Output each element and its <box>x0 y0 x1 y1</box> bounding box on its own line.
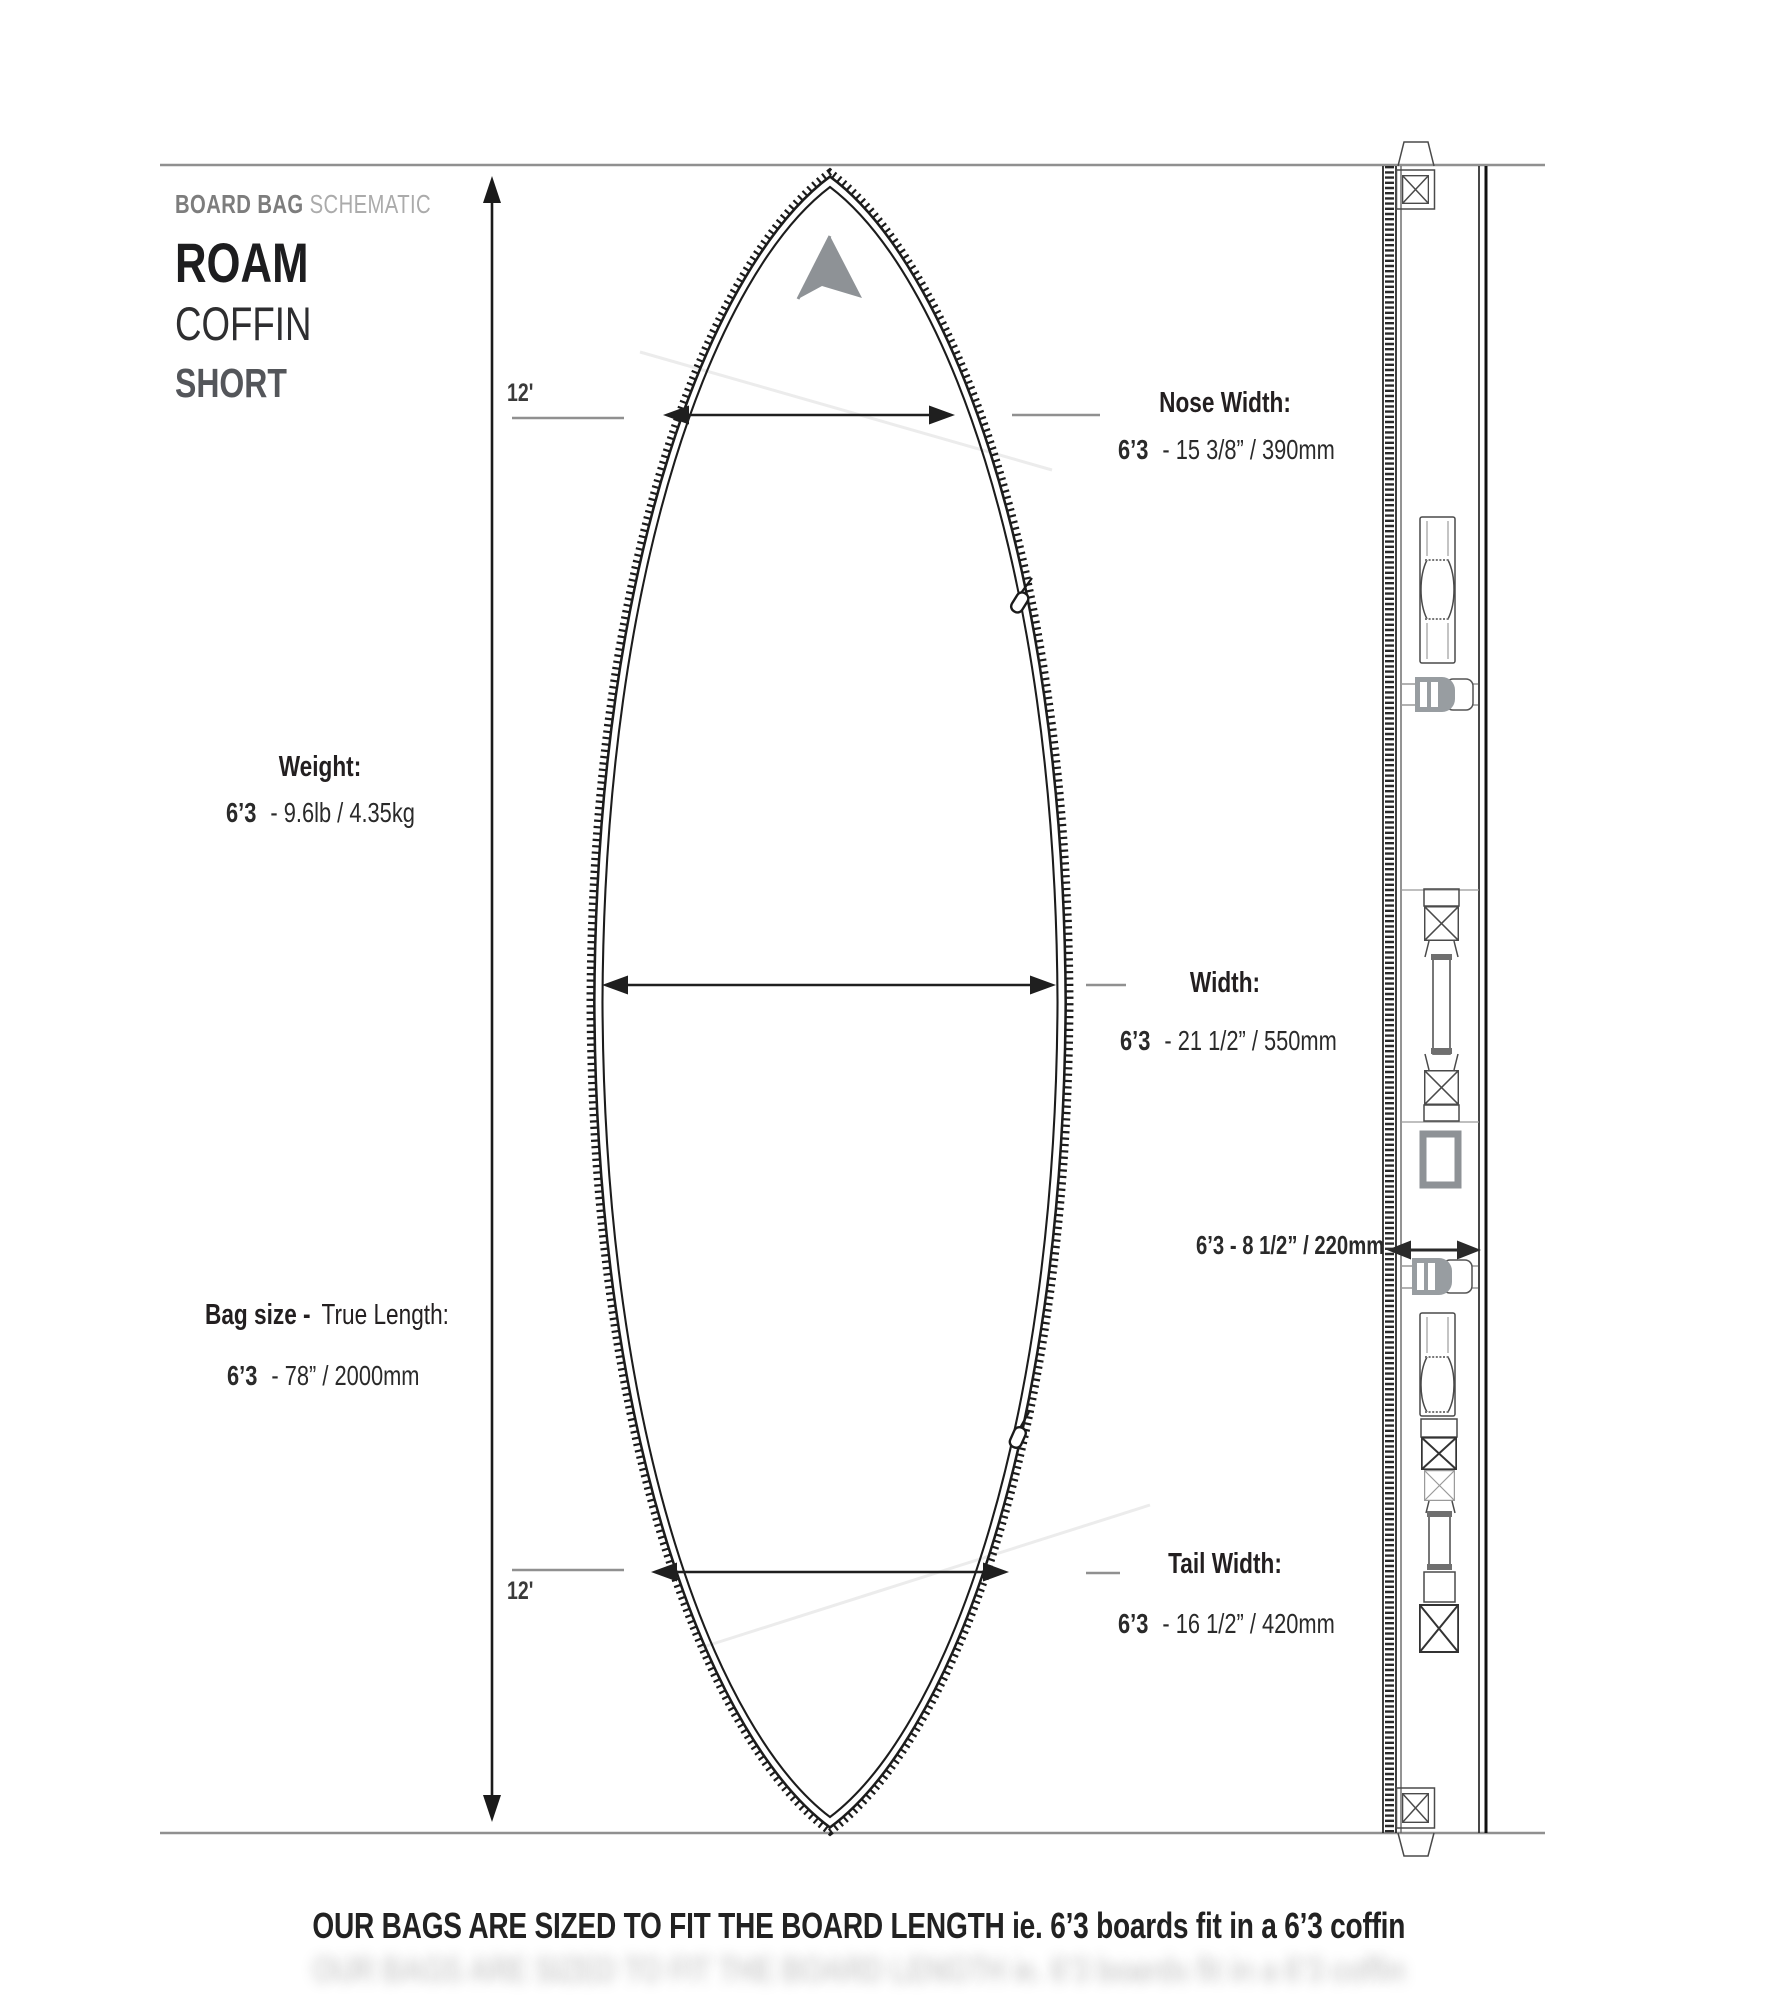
bag-front-view <box>590 172 1070 1832</box>
side-carry-handle-lower <box>1420 1313 1455 1416</box>
weight-value: 6’3- 9.6lb / 4.35kg <box>226 799 468 827</box>
category-primary: BOARD BAG <box>175 189 304 219</box>
nose-width-arrow <box>663 406 955 425</box>
product-variant: SHORT <box>175 363 319 404</box>
tail-width-label: Tail Width: <box>1131 1550 1318 1579</box>
bag-side-view <box>1383 142 1486 1856</box>
category-secondary: SCHEMATIC <box>310 189 431 219</box>
side-right-edge <box>1479 166 1486 1833</box>
bag-outline <box>594 177 1065 1828</box>
side-strap-buckle-upper <box>1401 677 1478 712</box>
depth-value: 6’3 - 8 1/2” / 220mm <box>1196 1232 1437 1258</box>
side-tail-strap <box>1420 1419 1458 1652</box>
side-zipper-rail <box>1383 166 1401 1833</box>
roam-logo-icon <box>798 236 862 299</box>
zipper-teeth-outline <box>590 172 1070 1832</box>
nose-width-label: Nose Width: <box>1131 389 1318 418</box>
sheen-lines <box>640 352 1150 1648</box>
width-arrow <box>602 976 1056 995</box>
bag-size-value: 6’3- 78” / 2000mm <box>227 1362 474 1390</box>
tail-length-marker: 12' <box>507 1579 541 1604</box>
brand-name: ROAM <box>175 235 346 291</box>
width-label: Width: <box>1131 969 1318 998</box>
side-bottom-anchor <box>1397 1788 1435 1828</box>
side-lash-window <box>1423 1134 1458 1185</box>
sizing-note: OUR BAGS ARE SIZED TO FIT THE BOARD LENG… <box>312 1908 1392 1944</box>
board-bag-schematic-page: BOARD BAG SCHEMATIC ROAM COFFIN SHORT 12… <box>0 0 1772 2000</box>
nose-width-value: 6’3- 15 3/8” / 390mm <box>1118 436 1396 464</box>
side-bottom-handle <box>1398 1833 1434 1856</box>
schematic-category: BOARD BAG SCHEMATIC <box>175 191 503 217</box>
weight-label: Weight: <box>226 753 413 782</box>
bag-size-label: Bag size -True Length: <box>205 1301 518 1330</box>
side-top-anchor <box>1397 170 1435 209</box>
width-value: 6’3- 21 1/2” / 550mm <box>1120 1027 1398 1055</box>
side-carry-handle-upper <box>1420 517 1455 663</box>
length-arrow <box>483 176 501 1822</box>
side-strap-buckle-lower <box>1401 1258 1478 1295</box>
product-line: COFFIN <box>175 300 350 347</box>
side-top-handle <box>1398 142 1434 166</box>
tail-width-value: 6’3- 16 1/2” / 420mm <box>1118 1610 1396 1638</box>
nose-length-marker: 12' <box>507 381 541 406</box>
side-shoulder-strap <box>1424 889 1459 1121</box>
